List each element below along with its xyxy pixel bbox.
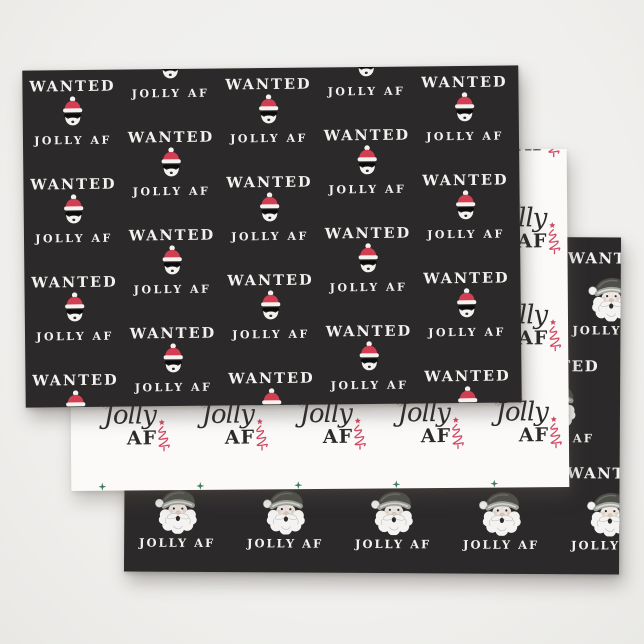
hipster-santa-icon bbox=[453, 190, 479, 220]
red-star-icon bbox=[355, 417, 361, 423]
jolly-af-text: JOLLY AF bbox=[25, 228, 123, 251]
hipster-santa-icon bbox=[63, 390, 89, 408]
hipster-santa-icon bbox=[354, 145, 380, 175]
hipster-santa-icon bbox=[160, 343, 186, 373]
pattern-unit-wanted: WANTED JOLLY AF bbox=[121, 65, 220, 127]
vintage-santa-icon bbox=[261, 486, 309, 534]
pattern-unit-wanted: WANTED JOLLY AF bbox=[24, 174, 123, 273]
pattern-unit-wanted: WANTED JOLLY AF bbox=[23, 76, 122, 175]
product-photo[interactable]: WANTED JOLLY AF WANTED bbox=[0, 0, 644, 644]
hipster-santa-icon bbox=[158, 147, 184, 177]
pattern-unit-wanted: WANTED JOLLY AF bbox=[319, 222, 418, 321]
scribble-christmas-tree-icon bbox=[347, 417, 373, 450]
jolly-af-text: JOLLY AF bbox=[124, 377, 222, 400]
hipster-santa-icon bbox=[353, 65, 379, 77]
hipster-santa-icon bbox=[259, 388, 285, 408]
jolly-af-text: JOLLY AF bbox=[121, 83, 219, 106]
scribble-christmas-tree-icon bbox=[249, 418, 275, 451]
pattern-unit-wanted: WANTED JOLLY AF bbox=[122, 127, 221, 226]
pattern-unit-wanted: WANTED JOLLY AF bbox=[219, 74, 318, 173]
vintage-santa-icon bbox=[369, 487, 417, 535]
pattern-unit-wanted: WANTED JOLLY AF bbox=[26, 370, 125, 408]
wrapping-sheet-wanted: WANTED JOLLY AF WANTED JOLLY AF WANTED bbox=[22, 65, 522, 407]
jolly-af-text: JOLLY AF bbox=[446, 536, 556, 553]
hipster-santa-icon bbox=[60, 96, 86, 126]
pattern-unit-wanted: WANTED JOLLY AF bbox=[25, 272, 124, 371]
hipster-santa-icon bbox=[157, 65, 183, 79]
jolly-af-text: JOLLY AF bbox=[338, 536, 448, 553]
jolly-af-text: JOLLY AF bbox=[416, 125, 514, 148]
green-sparkle-star-icon bbox=[196, 482, 204, 490]
red-star-icon bbox=[159, 419, 165, 425]
vintage-santa-icon bbox=[477, 488, 525, 536]
green-sparkle-star-icon bbox=[294, 481, 302, 489]
jolly-af-text: JOLLY AF bbox=[554, 537, 621, 554]
jolly-af-text: JOLLY AF bbox=[124, 534, 232, 551]
hipster-santa-icon bbox=[257, 192, 283, 222]
hipster-santa-icon bbox=[258, 290, 284, 320]
jolly-af-text: JOLLY AF bbox=[319, 276, 417, 299]
vintage-santa-icon bbox=[587, 273, 622, 321]
pattern-unit-wanted: WANTED JOLLY AF bbox=[415, 71, 514, 170]
red-star-icon bbox=[453, 416, 459, 422]
jolly-af-text: JOLLY AF bbox=[221, 226, 319, 249]
jolly-af-text: JOLLY AF bbox=[318, 178, 416, 201]
vintage-santa-icon bbox=[585, 488, 621, 536]
jolly-af-text: JOLLY AF bbox=[317, 80, 415, 103]
hipster-santa-icon bbox=[356, 341, 382, 371]
pattern-unit-wanted: WANTED JOLLY AF bbox=[221, 270, 320, 369]
scribble-christmas-tree-icon bbox=[445, 416, 471, 449]
red-star-icon bbox=[551, 416, 557, 422]
hipster-santa-icon bbox=[159, 245, 185, 275]
jolly-af-text: JOLLY AF bbox=[417, 223, 515, 246]
pattern-unit-wanted: WANTED JOLLY AF bbox=[124, 323, 223, 408]
jolly-af-text: JOLLY AF bbox=[220, 128, 318, 151]
pattern-unit-wanted: WANTED JOLLY AF bbox=[123, 225, 222, 324]
jolly-af-text: JOLLY AF bbox=[222, 324, 320, 347]
green-sparkle-star-icon bbox=[392, 480, 400, 488]
scribble-christmas-tree-icon bbox=[542, 319, 568, 352]
red-star-icon bbox=[550, 319, 556, 325]
green-sparkle-star-icon bbox=[490, 480, 498, 488]
pattern-unit-wanted: WANTED JOLLY AF bbox=[317, 65, 416, 125]
green-sparkle-star-icon bbox=[98, 483, 106, 491]
vintage-santa-icon bbox=[153, 486, 201, 534]
hipster-santa-icon bbox=[355, 243, 381, 273]
scribble-christmas-tree-icon bbox=[151, 419, 177, 452]
jolly-af-text: JOLLY AF bbox=[26, 326, 124, 349]
jolly-af-text: JOLLY AF bbox=[123, 279, 221, 302]
jolly-af-text: JOLLY AF bbox=[230, 535, 340, 552]
jolly-af-text: JOLLY AF bbox=[24, 130, 122, 153]
jolly-af-text: JOLLY AF bbox=[418, 321, 516, 344]
pattern-unit-wanted: WANTED JOLLY AF bbox=[222, 368, 321, 408]
pattern-unit-wanted: WANTED JOLLY AF bbox=[220, 172, 319, 271]
jolly-af-text: JOLLY AF bbox=[320, 374, 418, 397]
scribble-christmas-tree-icon bbox=[543, 416, 569, 449]
red-star-icon bbox=[549, 222, 555, 228]
hipster-santa-icon bbox=[61, 194, 87, 224]
pattern-unit-wanted: WANTED JOLLY AF bbox=[416, 169, 515, 268]
pattern-unit-wanted: WANTED JOLLY AF bbox=[318, 124, 417, 223]
scribble-christmas-tree-icon bbox=[540, 149, 566, 158]
scribble-christmas-tree-icon bbox=[541, 222, 567, 255]
pattern-unit-wanted: WANTED JOLLY AF bbox=[418, 365, 517, 407]
pattern-unit-wanted: WANTED JOLLY AF bbox=[417, 267, 516, 366]
hipster-santa-icon bbox=[451, 92, 477, 122]
pattern-unit-wanted: WANTED JOLLY AF bbox=[320, 320, 419, 407]
jolly-af-text: JOLLY AF bbox=[122, 181, 220, 204]
hipster-santa-icon bbox=[256, 94, 282, 124]
hipster-santa-icon bbox=[454, 288, 480, 318]
hipster-santa-icon bbox=[62, 292, 88, 322]
red-star-icon bbox=[257, 418, 263, 424]
